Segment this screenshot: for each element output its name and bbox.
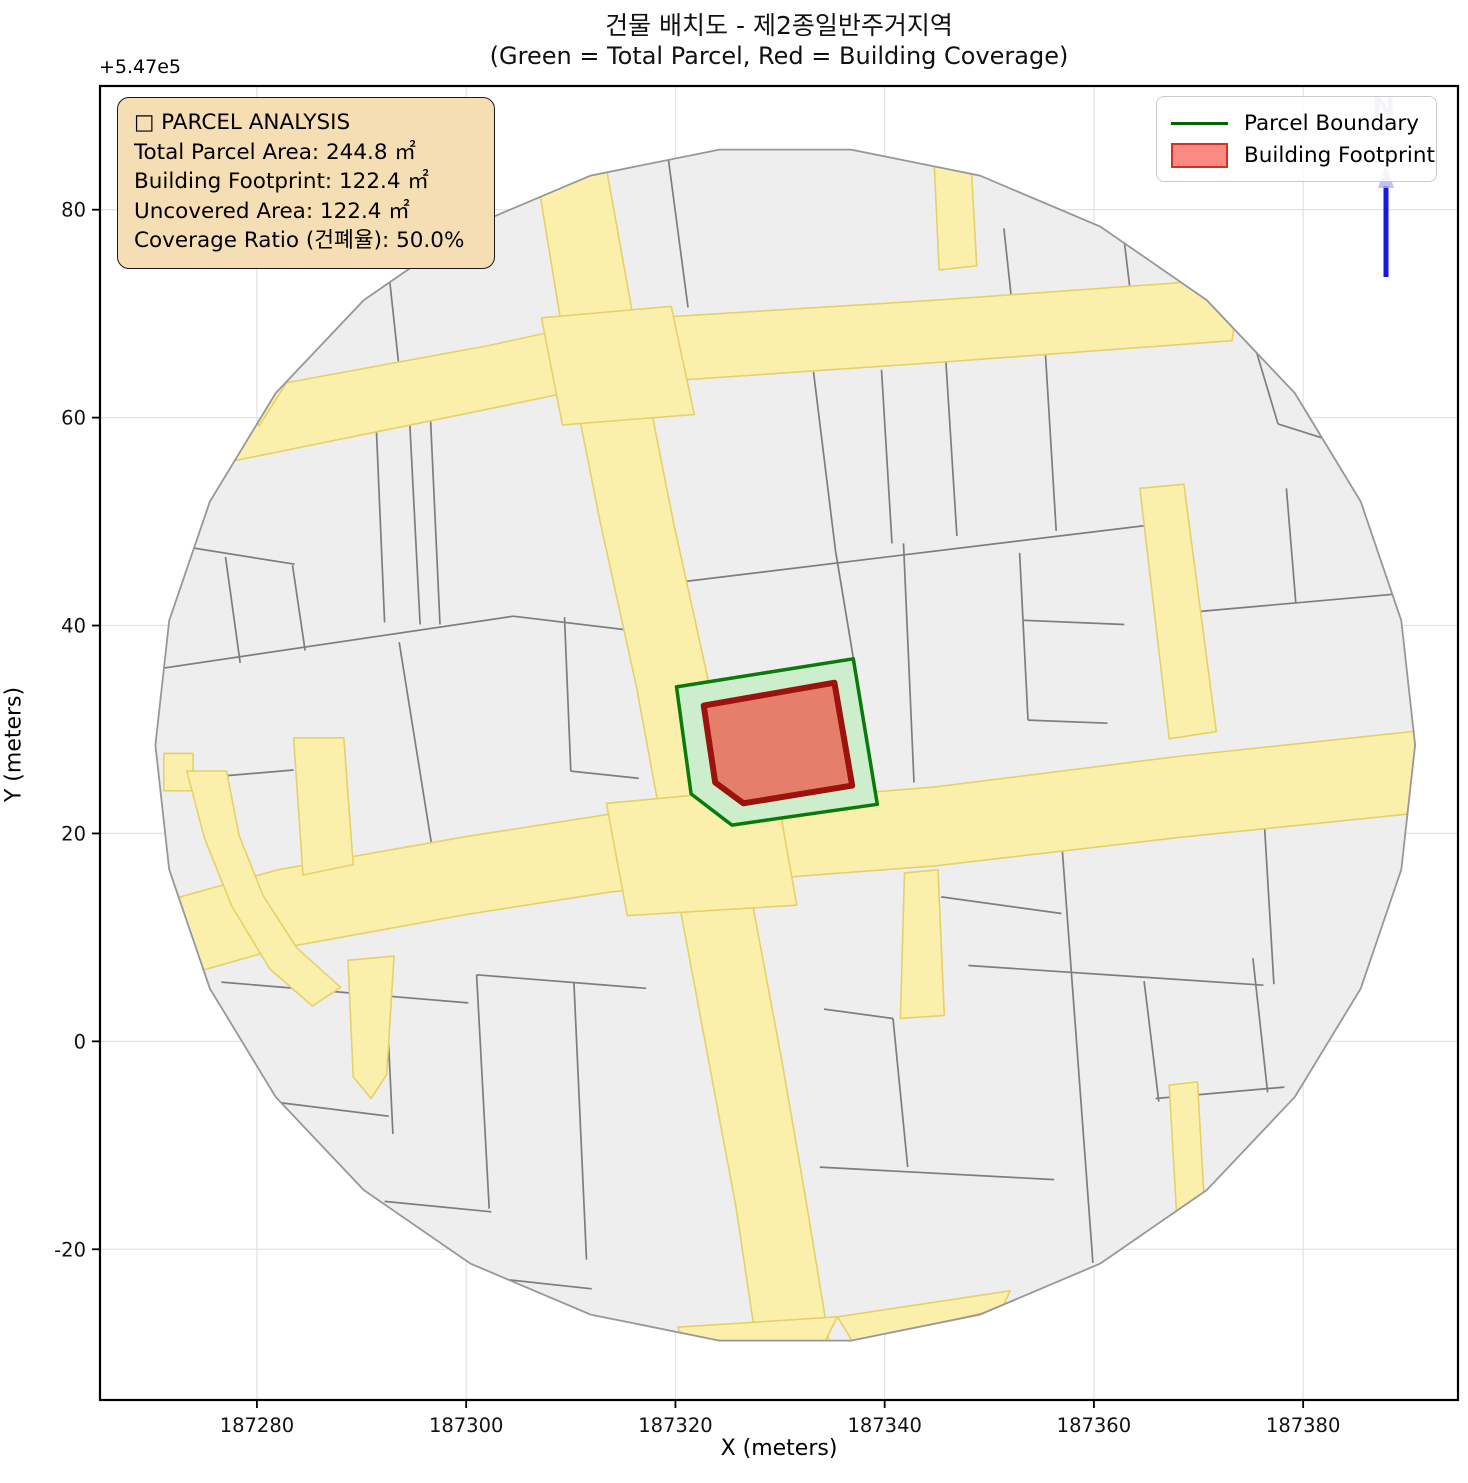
info-line: Uncovered Area: 122.4 ㎡ (134, 197, 478, 227)
info-line: Total Parcel Area: 244.8 ㎡ (134, 138, 478, 168)
parcel-analysis-box: □ PARCEL ANALYSIS Total Parcel Area: 244… (117, 97, 495, 269)
legend-label: Building Footprint (1244, 143, 1435, 168)
y-tick-label: 60 (61, 407, 86, 430)
chart-title-line2: (Green = Total Parcel, Red = Building Co… (100, 41, 1458, 71)
chart-title: 건물 배치도 - 제2종일반주거지역 (Green = Total Parcel… (100, 10, 1458, 71)
y-axis-offset-text: +5.47e5 (99, 56, 181, 78)
parcel-analysis-title: □ PARCEL ANALYSIS (134, 108, 478, 138)
y-axis-label: Y (meters) (2, 595, 27, 895)
legend-item-parcel-boundary: Parcel Boundary (1171, 107, 1422, 139)
chart-title-line1: 건물 배치도 - 제2종일반주거지역 (100, 10, 1458, 41)
x-tick-label: 187320 (638, 1414, 712, 1437)
x-tick-label: 187340 (847, 1414, 921, 1437)
info-line: Coverage Ratio (건폐율): 50.0% (134, 226, 478, 256)
y-tick-label: 80 (61, 199, 86, 222)
building-footprint-patch-icon (1171, 143, 1228, 168)
y-tick-label: 40 (61, 615, 86, 638)
x-tick-label: 187360 (1057, 1414, 1131, 1437)
road-north-stub-road (933, 133, 977, 270)
legend-item-building-footprint: Building Footprint (1171, 139, 1422, 171)
building-footprint-polygon[interactable] (704, 683, 853, 804)
road-south-stub-road (900, 870, 944, 1019)
info-line: Building Footprint: 122.4 ㎡ (134, 167, 478, 197)
x-tick-label: 187380 (1266, 1414, 1340, 1437)
y-tick-label: 0 (74, 1030, 86, 1053)
road-junction-flare-upper (542, 306, 695, 425)
road-west-narrow-upper (294, 738, 354, 875)
y-tick-label: -20 (54, 1238, 86, 1261)
x-axis-label: X (meters) (100, 1436, 1458, 1461)
legend: Parcel Boundary Building Footprint (1156, 96, 1437, 182)
x-tick-label: 187280 (220, 1414, 294, 1437)
legend-label: Parcel Boundary (1244, 111, 1419, 136)
x-tick-label: 187300 (429, 1414, 503, 1437)
figure: 1872801873001873201873401873601873808060… (0, 0, 1468, 1483)
parcel-boundary-line-icon (1171, 122, 1228, 125)
y-tick-label: 20 (61, 822, 86, 845)
parcel-analysis-lines: Total Parcel Area: 244.8 ㎡Building Footp… (134, 138, 478, 256)
